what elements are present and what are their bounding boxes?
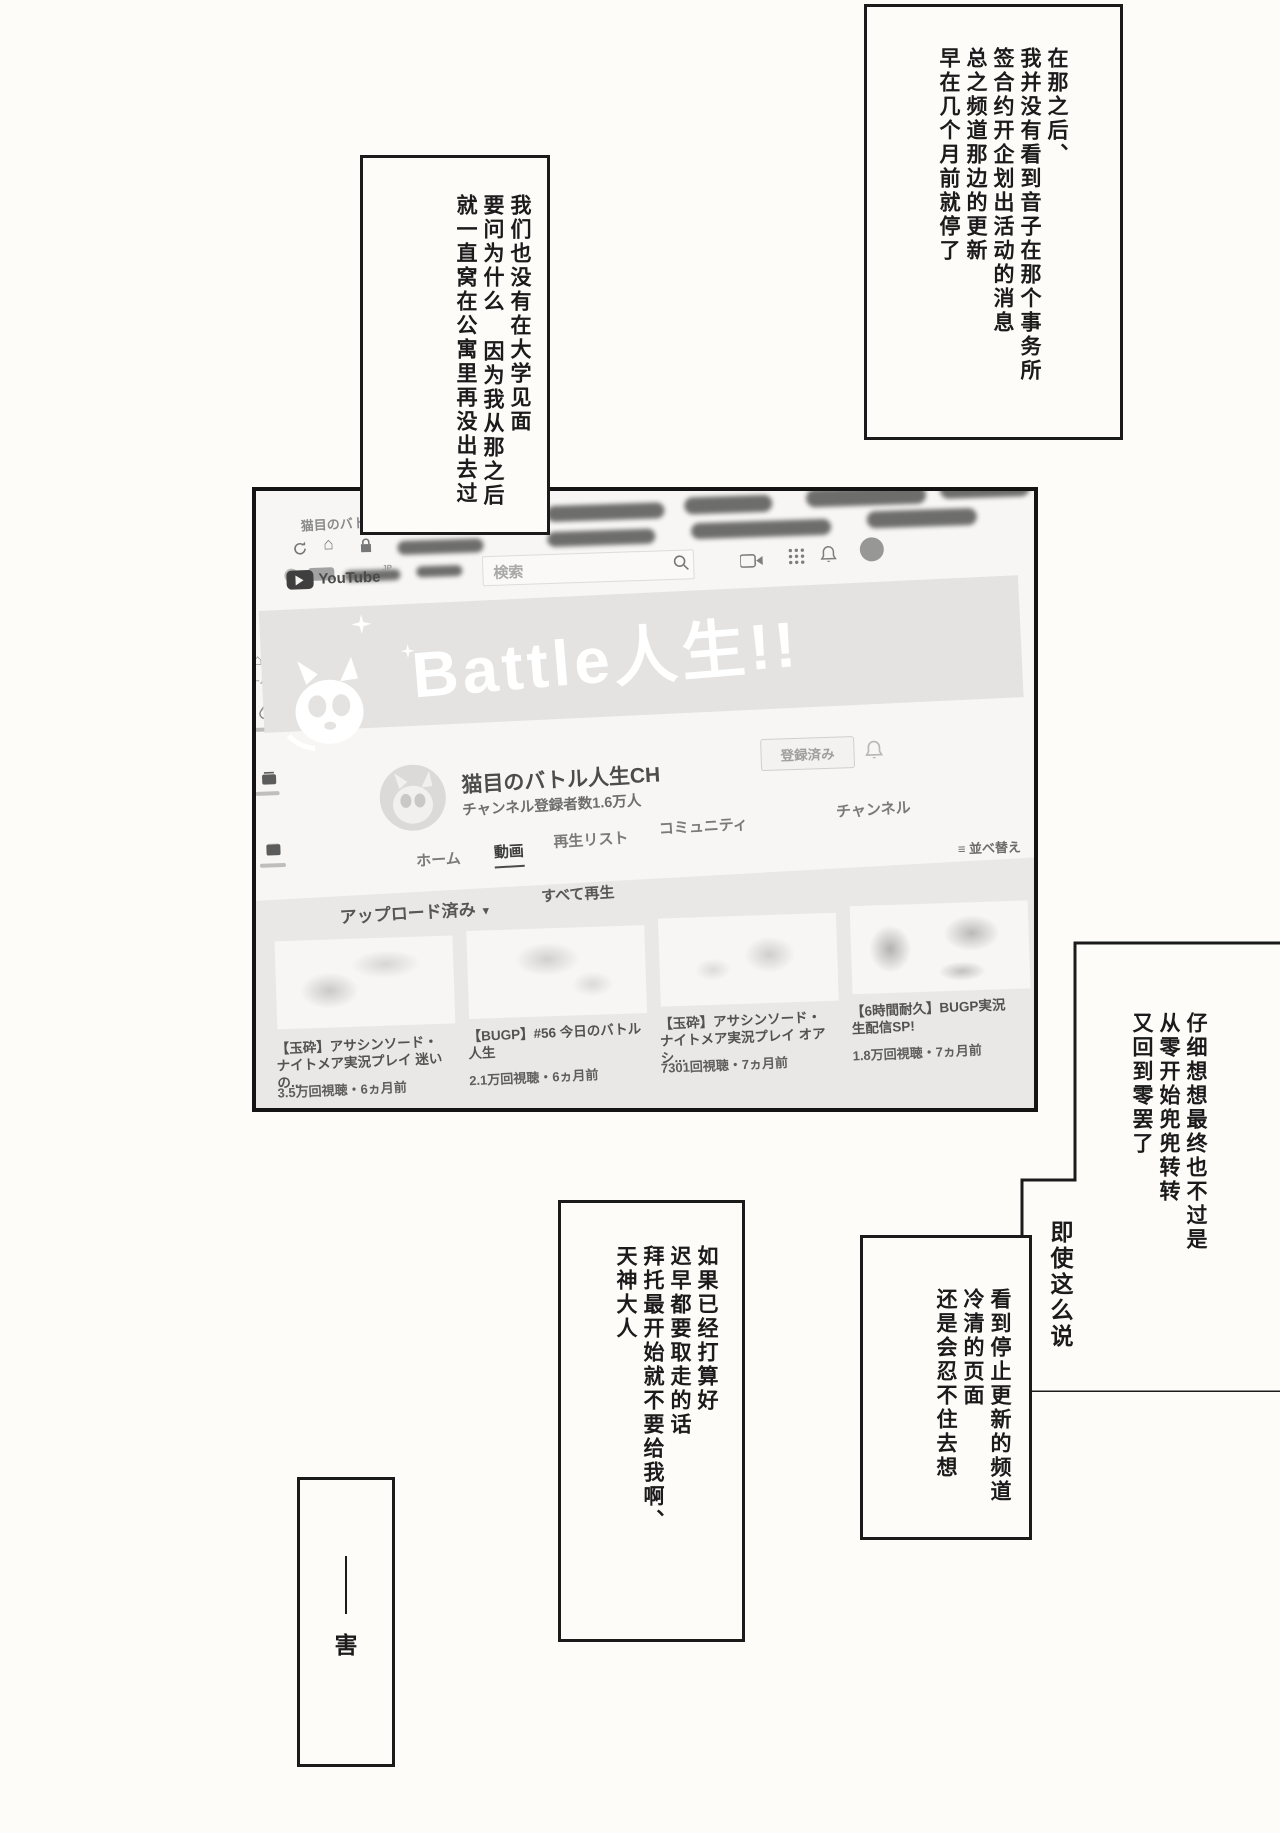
speech-line: 仔细想想最终也不过是 [1182, 1012, 1209, 1342]
manga-page: 在那之后、 我并没有看到音子在那个事务所 签合约开企划出活动的消息 总之频道那边… [0, 0, 1280, 1833]
speech-text: 仔细想想最终也不过是 从零开始兜兜转转 又回到零罢了 [1128, 1012, 1209, 1342]
channel-avatar[interactable] [379, 764, 447, 832]
speech-line: 我并没有看到音子在那个事务所 [1016, 47, 1043, 437]
speech-line: 早在几个月前就停了 [935, 47, 962, 437]
speech-line: 要问为什么 因为我从那之后 [479, 194, 506, 534]
sort-label: 並べ替え [969, 840, 1021, 857]
banner-title-text: Battle人生!! [408, 593, 803, 717]
speech-text: 害 [335, 1626, 358, 1660]
tab-channels[interactable]: チャンネル [835, 796, 911, 821]
speech-line: 看到停止更新的频道 [986, 1288, 1013, 1536]
sidebar-library-icon[interactable] [265, 843, 281, 858]
lock-icon [359, 538, 372, 553]
notification-bell-icon[interactable] [820, 545, 838, 565]
subscribed-button-label: 登録済み [780, 743, 835, 765]
youtube-screenshot-panel: 猫目のバトル人生CH - Yo ⌂ [252, 487, 1038, 1112]
censor-smudge [691, 519, 831, 540]
speech-box-bottom-center: 如果已经打算好 迟早都要取走的话 拜托最开始就不要给我啊、 天神大人 [558, 1200, 745, 1642]
sort-button[interactable]: ≡ 並べ替え [957, 837, 1021, 858]
channel-bell-icon[interactable] [864, 739, 884, 761]
censor-smudge [397, 538, 483, 555]
youtube-wordmark: YouTube [318, 569, 380, 588]
censor-smudge [684, 495, 773, 515]
speech-line: 如果已经打算好 [693, 1245, 720, 1625]
tab-community[interactable]: コミュニティ [658, 813, 748, 839]
speech-line: 天神大人 [612, 1245, 639, 1625]
speech-line: 又回到零罢了 [1128, 1012, 1155, 1342]
speech-line: 总之频道那边的更新 [962, 47, 989, 437]
video-thumbnail[interactable] [274, 935, 455, 1029]
speech-box-bottom-mid: 看到停止更新的频道 冷清的页面 还是会忍不住去想 [860, 1235, 1032, 1540]
speech-line: 还是会忍不住去想 [932, 1288, 959, 1536]
speech-box-bottom-left: 害 [297, 1477, 395, 1767]
sidebar-label-scribble [256, 791, 280, 796]
channel-banner: Battle人生!! [259, 575, 1024, 733]
speech-text: 在那之后、 我并没有看到音子在那个事务所 签合约开企划出活动的消息 总之频道那边… [935, 47, 1070, 437]
account-avatar[interactable] [859, 537, 884, 562]
youtube-logo[interactable]: YouTube JP [286, 564, 437, 595]
censor-smudge [806, 487, 927, 507]
youtube-region-label: JP [382, 563, 392, 572]
play-all-button[interactable]: すべて再生 [541, 881, 615, 906]
subscribed-button[interactable]: 登録済み [760, 736, 855, 771]
speech-line: 拜托最开始就不要给我啊、 [639, 1245, 666, 1625]
speech-line: 就一直窝在公寓里再没出去过 [452, 194, 479, 534]
home-icon[interactable]: ⌂ [323, 534, 334, 554]
chevron-down-icon: ▼ [480, 905, 492, 918]
speech-box-upper-left: 我们也没有在大学见面 要问为什么 因为我从那之后 就一直窝在公寓里再没出去过 [360, 155, 550, 535]
create-video-icon[interactable] [740, 553, 764, 569]
sidebar-subscriptions-icon[interactable] [261, 771, 277, 786]
tab-home[interactable]: ホーム [416, 847, 462, 871]
censor-smudge [867, 508, 978, 529]
censor-smudge [546, 502, 664, 522]
video-thumbnail[interactable] [658, 913, 839, 1007]
speech-text: 看到停止更新的频道 冷清的页面 还是会忍不住去想 [932, 1288, 1013, 1536]
speech-text: 我们也没有在大学见面 要问为什么 因为我从那之后 就一直窝在公寓里再没出去过 [452, 194, 533, 534]
speech-line: 冷清的页面 [959, 1288, 986, 1536]
video-thumbnail[interactable] [466, 925, 647, 1019]
video-thumbnail[interactable] [850, 900, 1031, 994]
speech-text: 如果已经打算好 迟早都要取走的话 拜托最开始就不要给我啊、 天神大人 [612, 1245, 720, 1625]
search-input[interactable]: 検索 [482, 549, 695, 586]
search-icon[interactable] [672, 553, 691, 572]
sidebar-label-scribble [260, 863, 286, 868]
aside-text: 即使这么说 [1046, 1220, 1073, 1370]
speech-line: 从零开始兜兜转转 [1155, 1012, 1182, 1342]
search-placeholder: 検索 [493, 561, 524, 583]
speech-line: 我们也没有在大学见面 [506, 194, 533, 534]
tab-playlists[interactable]: 再生リスト [553, 827, 629, 852]
censor-smudge [547, 529, 655, 548]
apps-grid-icon[interactable] [788, 548, 806, 566]
play-icon [295, 575, 303, 585]
tab-videos[interactable]: 動画 [493, 840, 525, 869]
speech-line: 签合约开企划出活动的消息 [989, 47, 1016, 437]
speech-box-top-right: 在那之后、 我并没有看到音子在那个事务所 签合约开企划出活动的消息 总之频道那边… [864, 4, 1123, 440]
speech-line: 迟早都要取走的话 [666, 1245, 693, 1625]
banner-cat-drawing [277, 651, 400, 756]
censor-smudge [940, 487, 1031, 499]
speech-line: 在那之后、 [1043, 47, 1070, 437]
banner-sparkle [351, 614, 372, 635]
reload-icon[interactable] [291, 540, 309, 558]
sort-icon: ≡ [958, 841, 966, 856]
dash-stroke [345, 1556, 348, 1614]
